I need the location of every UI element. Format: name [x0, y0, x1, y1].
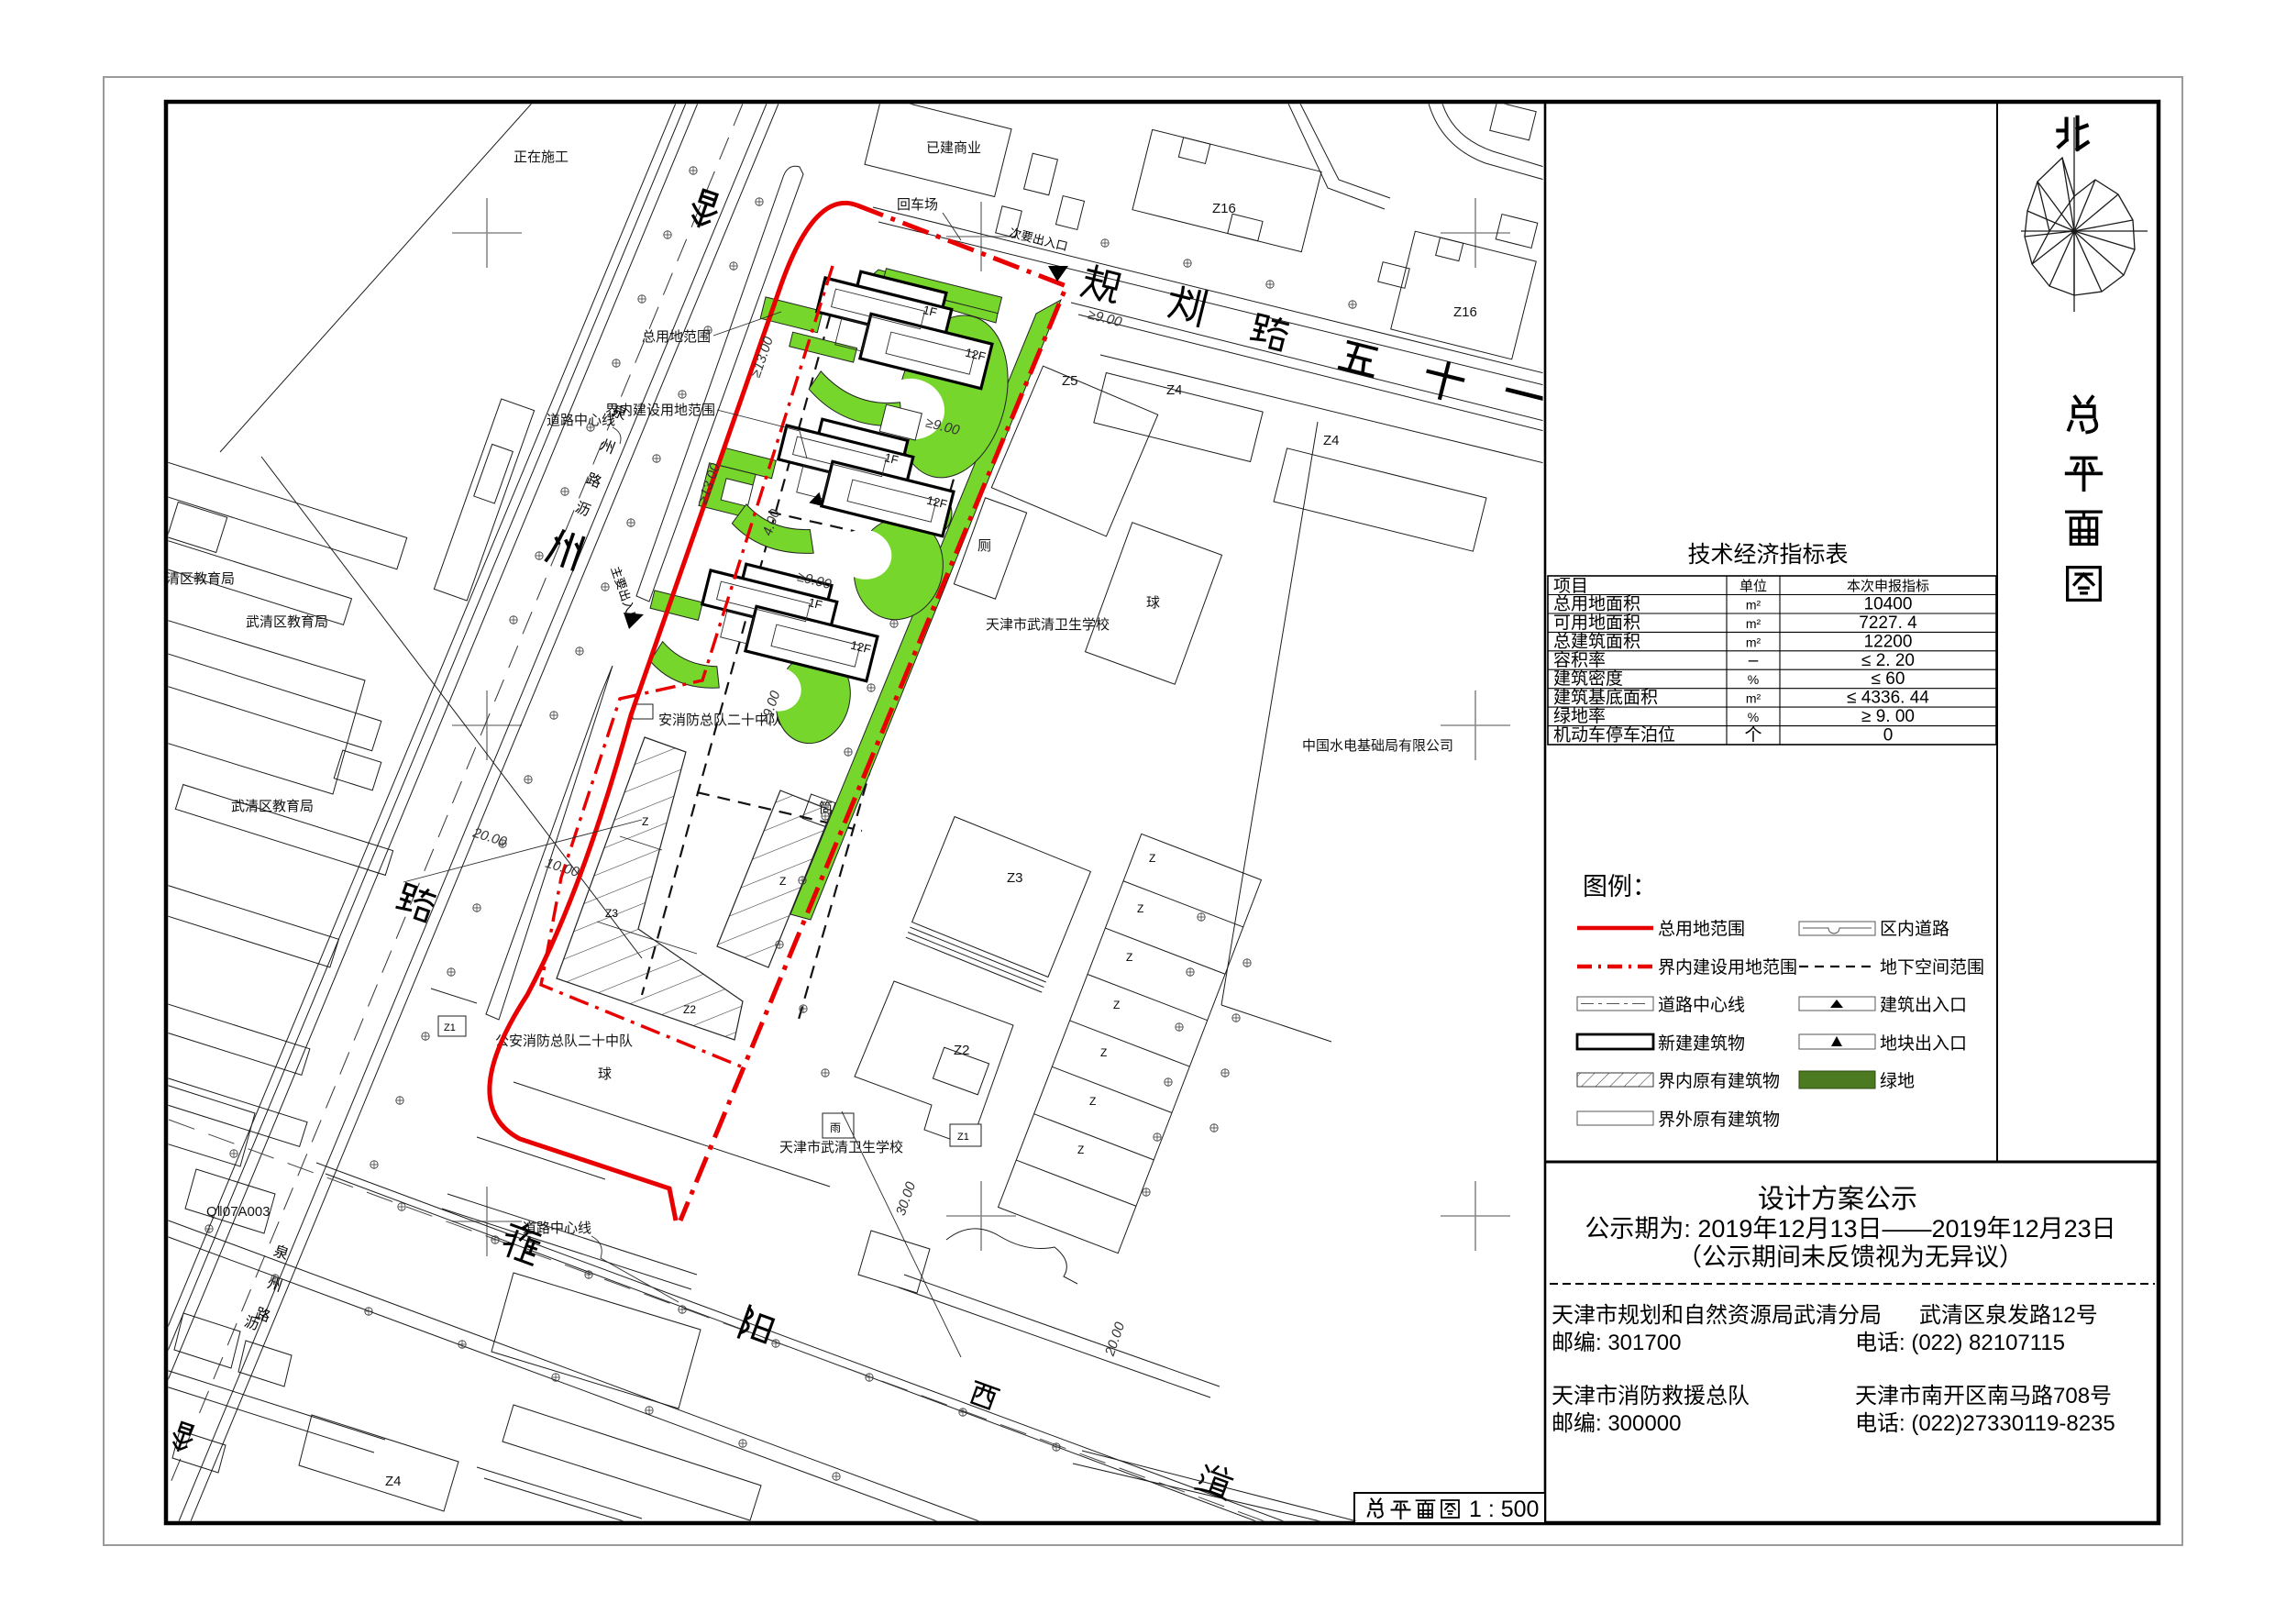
svg-text:球: 球: [598, 1066, 612, 1082]
svg-text:Z4: Z4: [1323, 433, 1340, 448]
svg-text:正在施工: 正在施工: [514, 149, 569, 165]
svg-text:项目: 项目: [1553, 577, 1588, 596]
svg-text:已建商业: 已建商业: [926, 140, 981, 156]
svg-text:≤ 4336. 44: ≤ 4336. 44: [1847, 689, 1929, 708]
svg-text:地块出入口: 地块出入口: [1880, 1033, 1967, 1054]
svg-text:12200: 12200: [1864, 632, 1913, 651]
svg-text:Z: Z: [1089, 1095, 1096, 1108]
svg-text:天津市南开区南马路708号: 天津市南开区南马路708号: [1855, 1384, 2112, 1409]
svg-text:Z4: Z4: [1166, 382, 1183, 398]
svg-text:m²: m²: [1746, 691, 1761, 706]
svg-text:≤ 60: ≤ 60: [1872, 669, 1905, 689]
svg-text:Z: Z: [1137, 902, 1143, 915]
svg-text:武清区教育局: 武清区教育局: [231, 799, 314, 814]
svg-text:Z2: Z2: [683, 1003, 696, 1016]
svg-text:Z3: Z3: [605, 907, 618, 920]
svg-text:Z3: Z3: [1007, 870, 1023, 886]
svg-text:%: %: [1748, 710, 1759, 724]
svg-text:武清区教育局: 武清区教育局: [246, 614, 328, 630]
svg-text:天津市消防救援总队: 天津市消防救援总队: [1552, 1384, 1750, 1409]
svg-text:7227. 4: 7227. 4: [1859, 613, 1917, 633]
svg-text:电话: (022)27330119-8235: 电话: (022)27330119-8235: [1855, 1411, 2115, 1436]
svg-text:区内道路: 区内道路: [1880, 919, 1949, 939]
svg-text:本次申报指标: 本次申报指标: [1847, 579, 1929, 594]
svg-text:邮编: 300000: 邮编: 300000: [1552, 1411, 1681, 1436]
svg-text:Z: Z: [1113, 999, 1120, 1011]
svg-text:天津市规划和自然资源局武清分局: 天津市规划和自然资源局武清分局: [1552, 1303, 1882, 1328]
svg-text:中国水电基础局有限公司: 中国水电基础局有限公司: [1302, 738, 1453, 754]
svg-text:邮编: 301700: 邮编: 301700: [1552, 1331, 1681, 1355]
svg-text:Z: Z: [642, 815, 648, 828]
svg-text:Z: Z: [1077, 1143, 1084, 1156]
svg-text:公示期为: 2019年12月13日——2019年12月23日: 公示期为: 2019年12月13日——2019年12月23日: [1585, 1215, 2115, 1243]
svg-text:m²: m²: [1746, 616, 1761, 631]
svg-text:0: 0: [1883, 726, 1894, 746]
svg-text:个: 个: [1744, 725, 1761, 746]
svg-text:武清区泉发路12号: 武清区泉发路12号: [1919, 1303, 2098, 1328]
svg-text:技术经济指标表: 技术经济指标表: [1687, 542, 1848, 568]
svg-text:绿地: 绿地: [1880, 1071, 1915, 1091]
svg-text:–: –: [1749, 651, 1759, 670]
svg-text:≤ 2. 20: ≤ 2. 20: [1861, 651, 1915, 670]
svg-text:总建筑面积: 总建筑面积: [1553, 631, 1640, 651]
svg-text:Z: Z: [1126, 951, 1132, 964]
svg-text:地下空间范围: 地下空间范围: [1880, 957, 1984, 978]
svg-text:机动车停车泊位: 机动车停车泊位: [1553, 725, 1675, 746]
svg-text:建筑密度: 建筑密度: [1553, 668, 1623, 689]
svg-text:回车场: 回车场: [897, 197, 938, 213]
svg-text:建筑基底面积: 建筑基底面积: [1553, 688, 1658, 708]
svg-text:Z16: Z16: [1453, 304, 1477, 320]
svg-text:图例：: 图例：: [1583, 873, 1657, 900]
svg-text:总用地范围: 总用地范围: [642, 329, 711, 345]
svg-text:Z: Z: [1100, 1046, 1107, 1059]
svg-text:m²: m²: [1746, 635, 1761, 649]
svg-text:清区教育局: 清区教育局: [166, 571, 235, 587]
svg-text:设计方案公示: 设计方案公示: [1758, 1184, 1917, 1214]
svg-text:≥ 9. 00: ≥ 9. 00: [1861, 707, 1915, 726]
svg-text:球: 球: [1146, 595, 1160, 611]
svg-text:总用地范围: 总用地范围: [1658, 919, 1745, 939]
svg-text:Z: Z: [779, 875, 786, 888]
svg-text:容积率: 容积率: [1553, 650, 1606, 670]
svg-text:道路中心线: 道路中心线: [1658, 995, 1745, 1015]
svg-text:1 : 500: 1 : 500: [1469, 1497, 1539, 1522]
svg-text:界内原有建筑物: 界内原有建筑物: [1658, 1071, 1780, 1091]
svg-text:m²: m²: [1746, 598, 1761, 613]
svg-text:界内建设用地范围: 界内建设用地范围: [1658, 957, 1797, 978]
svg-text:（公示期间未反馈视为无异议）: （公示期间未反馈视为无异议）: [1677, 1243, 2024, 1271]
svg-text:天津市武清卫生学校: 天津市武清卫生学校: [779, 1140, 903, 1155]
svg-text:10400: 10400: [1864, 595, 1913, 614]
svg-text:单位: 单位: [1739, 579, 1767, 594]
svg-text:Z1: Z1: [957, 1132, 969, 1143]
svg-text:Z5: Z5: [1062, 373, 1078, 389]
svg-text:建筑出入口: 建筑出入口: [1880, 995, 1967, 1015]
svg-text:Q‖07A003: Q‖07A003: [206, 1204, 271, 1220]
svg-text:道路中心线: 道路中心线: [523, 1221, 591, 1236]
svg-text:雨: 雨: [830, 1121, 841, 1134]
svg-text:新建建筑物: 新建建筑物: [1658, 1033, 1745, 1054]
svg-text:界内建设用地范围: 界内建设用地范围: [605, 403, 715, 418]
svg-text:可用地面积: 可用地面积: [1553, 613, 1640, 633]
svg-text:Z16: Z16: [1212, 201, 1236, 216]
svg-text:界外原有建筑物: 界外原有建筑物: [1658, 1110, 1780, 1130]
svg-text:总用地面积: 总用地面积: [1553, 594, 1640, 614]
svg-text:电话: (022) 82107115: 电话: (022) 82107115: [1855, 1331, 2065, 1355]
svg-text:Z: Z: [1149, 852, 1155, 865]
svg-text:Z4: Z4: [385, 1474, 402, 1489]
svg-text:Z1: Z1: [444, 1022, 456, 1033]
svg-text:厕: 厕: [977, 538, 991, 554]
svg-text:公安消防总队二十中队: 公安消防总队二十中队: [495, 1033, 633, 1049]
svg-text:天津市武清卫生学校: 天津市武清卫生学校: [986, 617, 1110, 633]
svg-text:%: %: [1748, 672, 1759, 687]
svg-text:绿地率: 绿地率: [1553, 706, 1606, 726]
